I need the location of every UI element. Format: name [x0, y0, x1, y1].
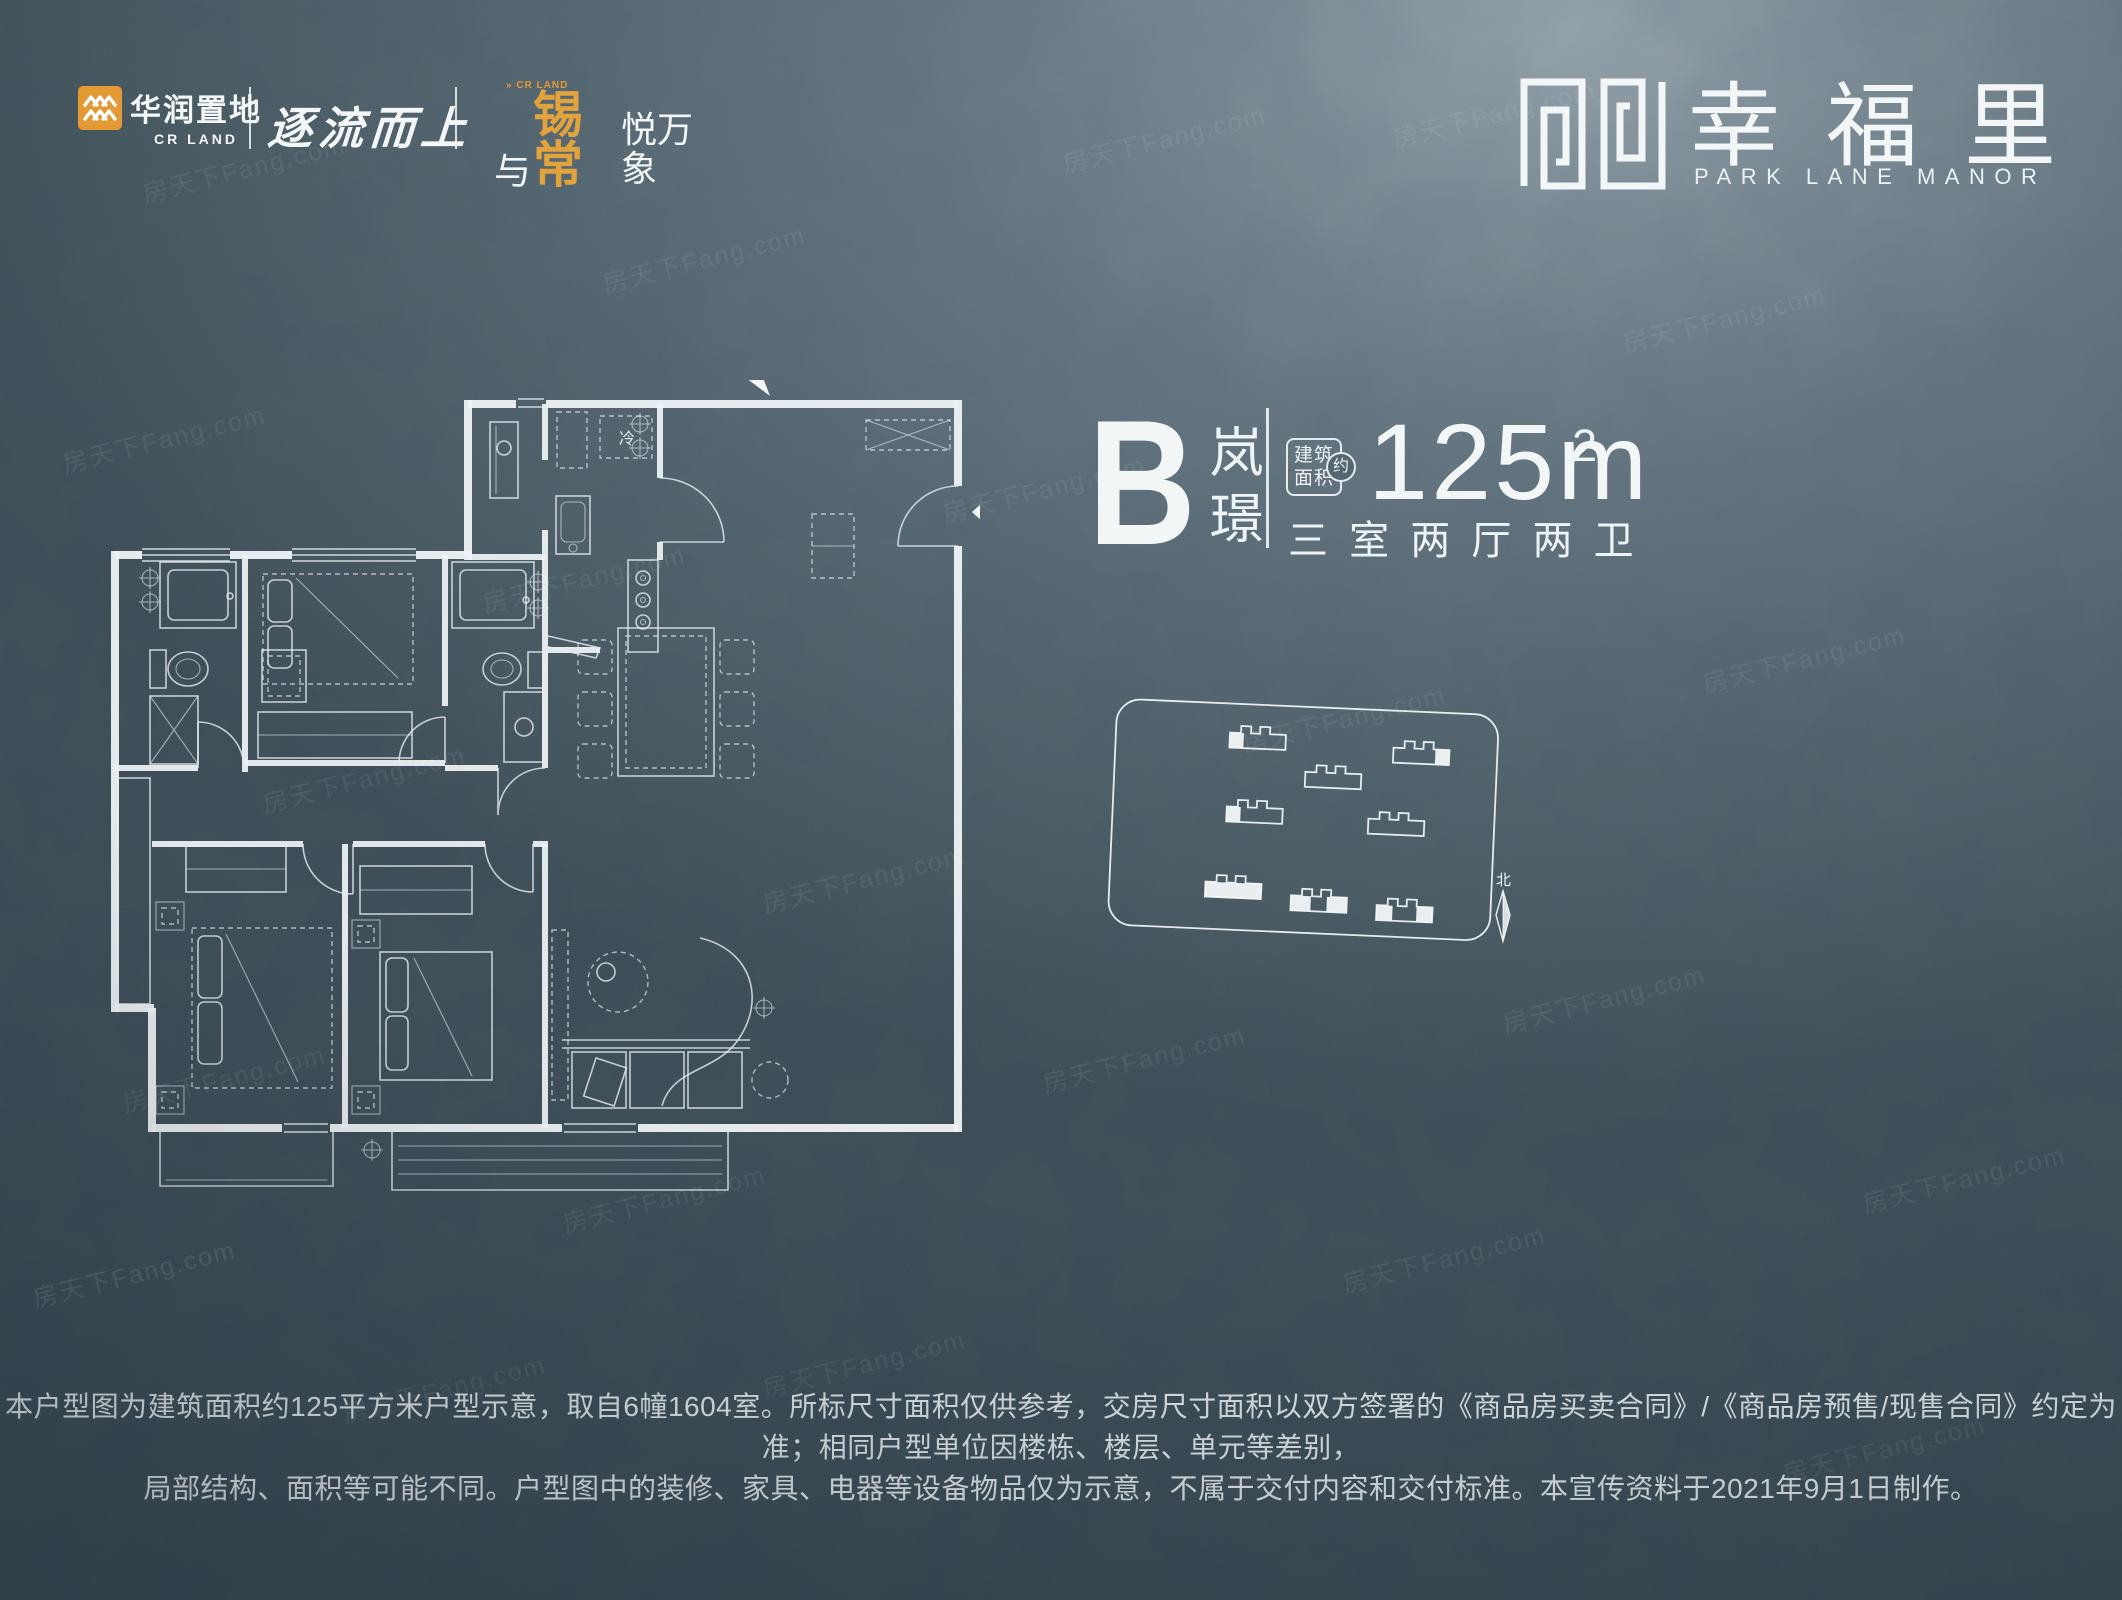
watermark: 房天下Fang.com [1619, 275, 1830, 360]
balconies [160, 1132, 728, 1190]
watermark: 房天下Fang.com [1039, 1015, 1250, 1100]
living-room [552, 930, 788, 1108]
foyer [812, 420, 950, 578]
header-divider-1 [249, 87, 251, 149]
brand-name-en: PARK LANE MANOR [1694, 164, 2046, 190]
kitchen: 冷 [490, 412, 658, 658]
watermark: 房天下Fang.com [1339, 1215, 1550, 1300]
campaign-orange: 锡常 [533, 90, 619, 190]
dining-area [578, 628, 754, 778]
master-bedroom [352, 866, 492, 1114]
compass-north-icon: 北 [1496, 872, 1511, 941]
unit-divider [1266, 408, 1269, 548]
area-value: 125m [1368, 408, 1650, 516]
campaign-prefix: 与 [494, 153, 531, 190]
drying-rack [118, 778, 150, 1004]
door-swings [198, 478, 958, 894]
watermark: 房天下Fang.com [1699, 615, 1910, 700]
entry-arrow-icon [742, 380, 770, 396]
unit-layout-desc: 三 室 两 厅 两 卫 [1288, 508, 1639, 566]
watermark: 房天下Fang.com [1859, 1135, 2070, 1220]
watermark: 房天下Fang.com [1499, 955, 1710, 1040]
watermark: 房天下Fang.com [29, 1230, 240, 1315]
crland-name-cn: 华润置地 [130, 94, 262, 128]
campaign-lockup: » CR LAND 与 锡常 悦万象 [494, 80, 714, 150]
bedroom-2 [258, 574, 413, 758]
area-approx-badge: 约 [1326, 452, 1356, 482]
outer-walls [115, 400, 958, 1132]
compass-label: 北 [1496, 872, 1511, 889]
unit-type-name: 岚璟 [1192, 424, 1271, 556]
watermark: 房天下Fang.com [599, 215, 810, 300]
mountain-chevrons-icon [80, 88, 120, 128]
header-divider-2 [455, 87, 457, 149]
site-buildings [1204, 725, 1450, 923]
watermark: 房天下Fang.com [1059, 95, 1270, 180]
crland-logo-icon [78, 86, 122, 130]
disclaimer: 本户型图为建筑面积约125平方米户型示意，取自6幢1604室。所标尺寸面积仅供参… [0, 1386, 2122, 1509]
crland-logo: 华润置地 CR LAND [78, 86, 262, 147]
crland-name-en: CR LAND [130, 131, 262, 147]
area-exponent: 2 [1572, 420, 1597, 472]
campaign-suffix: 悦万象 [621, 111, 714, 190]
bathroom-1 [139, 562, 236, 764]
